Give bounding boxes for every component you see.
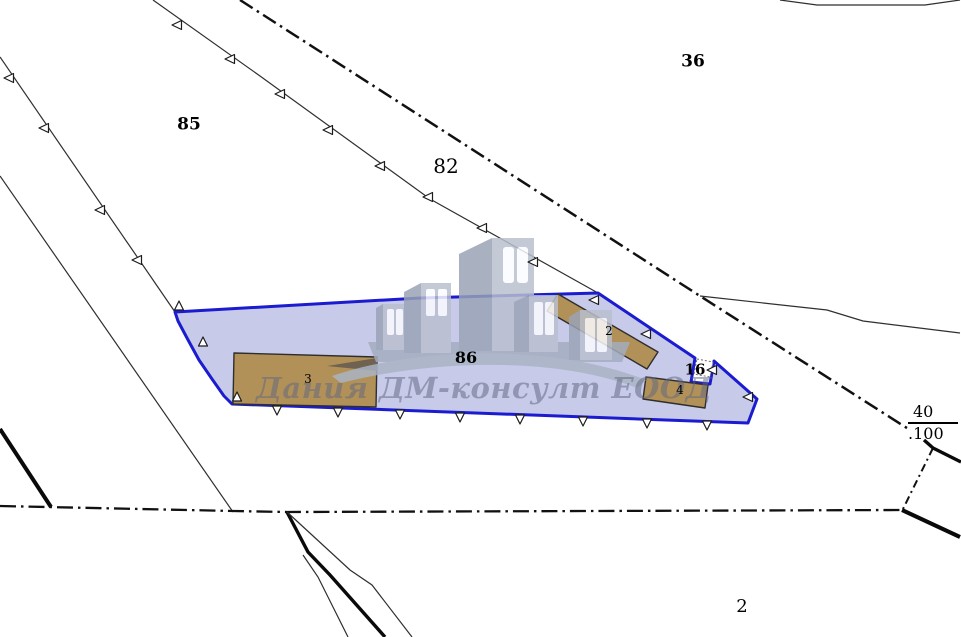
watermark-door-icon: [534, 302, 543, 335]
parcel-label-82: 82: [433, 156, 458, 176]
watermark-tower-icon: [459, 238, 492, 351]
survey-marker-icon: [703, 421, 712, 430]
building-label-4: 4: [676, 384, 684, 396]
road-edge-bottomright: [902, 510, 960, 537]
survey-marker-icon: [175, 301, 184, 310]
map-canvas: [0, 0, 961, 637]
survey-marker-icon: [423, 193, 433, 202]
cadastral-map-page: { "watermark": { "text": "Дания ДМ-консу…: [0, 0, 961, 637]
survey-marker-icon: [225, 55, 235, 64]
stream-bank-left: [303, 555, 348, 637]
watermark-door-icon: [387, 309, 394, 335]
parcel-label-2: 2: [736, 598, 747, 616]
stream-center: [287, 512, 385, 637]
boundary-line-left: [0, 57, 175, 312]
watermark-company-text: Дания ДМ-консулт ЕООД: [256, 371, 712, 405]
road-corner-right: [924, 440, 961, 462]
survey-point-number: 40: [908, 403, 958, 424]
parcel-label-16: 16: [685, 363, 706, 378]
watermark-tower-icon: [376, 304, 383, 350]
survey-marker-icon: [273, 406, 282, 415]
survey-marker-icon: [323, 126, 333, 135]
parcel-label-86: 86: [455, 350, 477, 366]
survey-marker-icon: [172, 21, 182, 30]
parcel-label-85: 85: [177, 117, 201, 134]
watermark-door-icon: [396, 309, 403, 335]
survey-point-elevation: .100: [908, 424, 958, 443]
watermark-tower-icon: [569, 310, 580, 360]
survey-marker-icon: [39, 124, 49, 133]
watermark-door-icon: [585, 318, 595, 352]
watermark-door-icon: [545, 302, 554, 335]
survey-marker-icon: [95, 206, 105, 215]
survey-marker-icon: [477, 224, 487, 233]
survey-marker-icon: [396, 410, 405, 419]
building-label-2: 2: [605, 325, 613, 337]
dashdot-boundary-right-short: [902, 448, 933, 511]
watermark-door-icon: [426, 289, 435, 316]
building-label-3: 3: [304, 373, 312, 385]
dashdot-boundary-bottom: [0, 506, 902, 512]
watermark-door-icon: [503, 247, 514, 283]
parcel-label-36: 36: [681, 54, 705, 71]
survey-marker-icon: [456, 413, 465, 422]
survey-marker-icon: [579, 417, 588, 426]
boundary-line-right: [700, 296, 960, 333]
road-edge-bottomleft: [0, 429, 51, 507]
survey-marker-icon: [334, 408, 343, 417]
survey-marker-icon: [643, 419, 652, 428]
watermark-tower-icon: [404, 283, 421, 353]
watermark-tower-icon: [514, 295, 529, 352]
boundary-line-topright: [780, 0, 960, 5]
watermark-door-icon: [438, 289, 447, 316]
stream-bank-right: [287, 512, 412, 637]
survey-marker-icon: [516, 415, 525, 424]
survey-point-label: 40 .100: [908, 403, 958, 442]
watermark-door-icon: [517, 247, 528, 283]
survey-marker-icon: [4, 74, 14, 83]
